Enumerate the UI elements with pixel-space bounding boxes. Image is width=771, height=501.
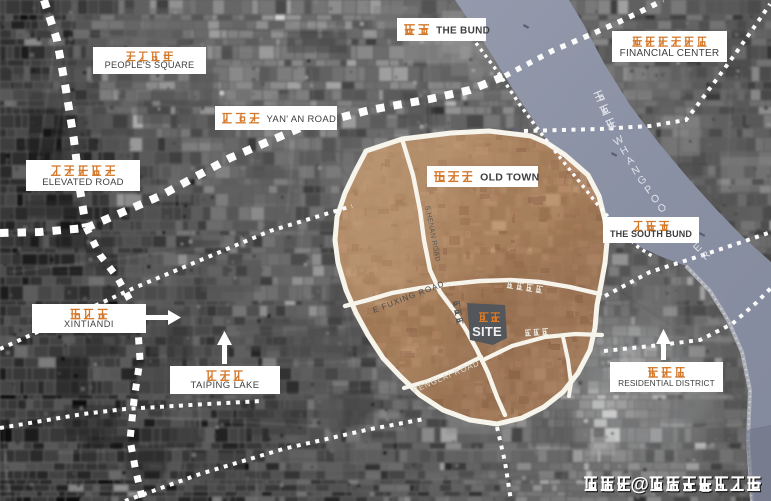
- svg-text:TAIPING LAKE: TAIPING LAKE: [190, 380, 259, 391]
- svg-text:PEOPLE'S SQUARE: PEOPLE'S SQUARE: [105, 60, 195, 70]
- svg-text:THE SOUTH BUND: THE SOUTH BUND: [610, 229, 692, 239]
- svg-text:THE BUND: THE BUND: [436, 26, 490, 37]
- svg-text:FINANCIAL CENTER: FINANCIAL CENTER: [620, 48, 720, 59]
- svg-text:YAN' AN ROAD: YAN' AN ROAD: [267, 114, 337, 125]
- svg-text:ELEVATED ROAD: ELEVATED ROAD: [42, 177, 124, 188]
- svg-text:RESIDENTIAL DISTRICT: RESIDENTIAL DISTRICT: [618, 378, 715, 388]
- svg-text:SITE: SITE: [472, 324, 502, 339]
- svg-text:OLD TOWN: OLD TOWN: [480, 172, 539, 184]
- svg-text:@: @: [630, 475, 649, 496]
- svg-text:XINTIANDI: XINTIANDI: [64, 319, 114, 329]
